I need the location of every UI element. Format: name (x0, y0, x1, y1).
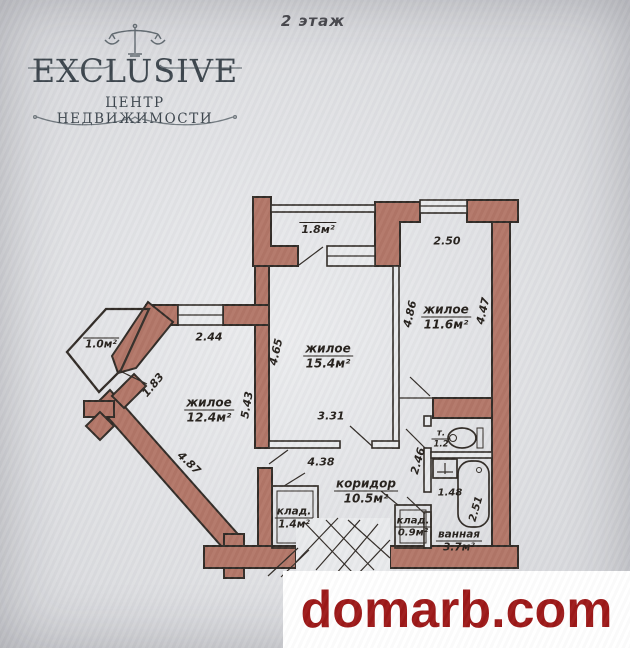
room-label-storage-14: клад. 1.4м² (275, 506, 313, 531)
room-label-living-124: жилое 12.4м² (184, 396, 234, 425)
floorplan-drawing (0, 0, 630, 648)
room-area: 1.2 (431, 440, 450, 450)
dim-left-room-width: 2.44 (195, 331, 222, 344)
room-area: 0.9м² (395, 528, 432, 539)
room-label-balcony-10: 1.0м² (83, 338, 119, 351)
room-area: 15.4м² (303, 357, 353, 371)
room-area: 1.4м² (275, 519, 313, 531)
room-name: клад. (275, 506, 313, 519)
room-label-corridor: коридор 10.5м² (334, 477, 398, 506)
photo-of-floorplan: 2 этаж EXCLUSIVE ЦЕНТР НЕДВИЖИМОСТИ (0, 0, 630, 648)
sink-icon (433, 459, 457, 478)
dim-corridor-width: 4.38 (307, 456, 334, 469)
dim-large-room-bottom: 3.31 (317, 410, 344, 423)
room-name: жилое (303, 342, 353, 357)
dim-bathroom-width: 1.48 (438, 488, 463, 499)
room-area: 12.4м² (184, 411, 234, 425)
room-area: 11.6м² (421, 318, 471, 332)
room-name: т. (431, 429, 450, 440)
room-area: 3.7м² (436, 542, 482, 554)
watermark-text: domarb.com (300, 580, 612, 640)
watermark-band: domarb.com (283, 571, 630, 648)
room-label-storage-09: клад. 0.9м² (395, 516, 432, 539)
room-name: жилое (184, 396, 234, 411)
toilet-icon (448, 428, 483, 448)
room-name: ванная (436, 529, 482, 542)
room-label-wc: т. 1.2 (431, 429, 450, 450)
room-area: 10.5м² (334, 492, 398, 506)
room-area: 1.0м² (83, 338, 119, 351)
room-name: жилое (421, 303, 471, 318)
balcony-railing (271, 205, 375, 212)
room-label-living-116: жилое 11.6м² (421, 303, 471, 332)
room-label-bathroom: ванная 3.7м² (436, 529, 482, 554)
room-label-living-154: жилое 15.4м² (303, 342, 353, 371)
room-area: 1.8м² (299, 222, 336, 236)
room-name: коридор (334, 477, 398, 492)
room-label-balcony-18: 1.8м² (299, 222, 336, 236)
room-name: клад. (395, 516, 432, 528)
dim-top-right-width: 2.50 (433, 235, 460, 248)
